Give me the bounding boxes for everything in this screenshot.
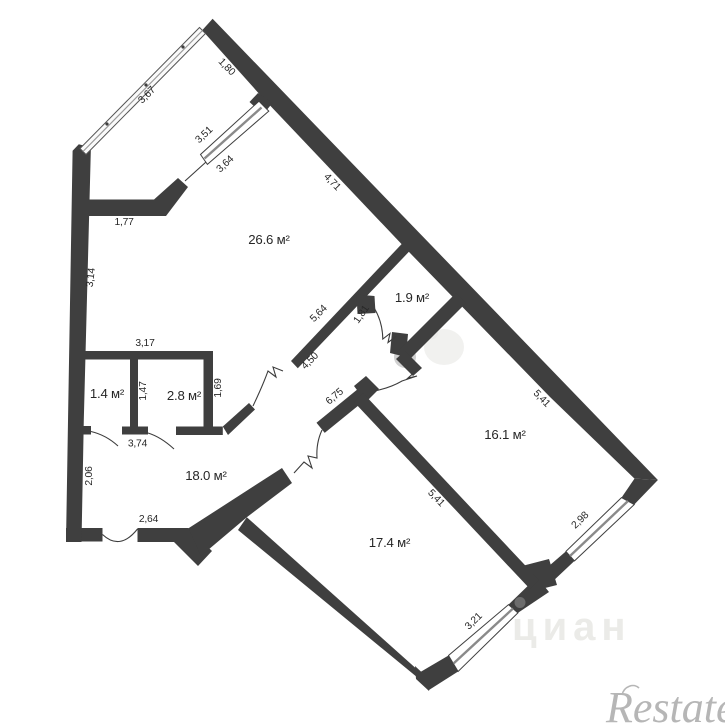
svg-text:1,69: 1,69 — [213, 378, 224, 398]
svg-text:1.4 м²: 1.4 м² — [90, 386, 125, 401]
svg-text:1,47: 1,47 — [138, 381, 149, 401]
svg-text:2,64: 2,64 — [139, 514, 159, 525]
svg-text:26.6 м²: 26.6 м² — [248, 232, 290, 247]
svg-text:2.8 м²: 2.8 м² — [167, 388, 202, 403]
svg-text:18.0 м²: 18.0 м² — [185, 468, 227, 483]
svg-text:1.9 м²: 1.9 м² — [395, 290, 430, 305]
svg-text:3,17: 3,17 — [135, 338, 155, 349]
svg-text:17.4 м²: 17.4 м² — [369, 535, 411, 550]
svg-text:3,74: 3,74 — [128, 439, 148, 450]
svg-text:1,77: 1,77 — [114, 217, 134, 228]
svg-text:Restate: Restate — [605, 683, 725, 725]
svg-text:2,06: 2,06 — [84, 466, 95, 486]
svg-text:циан: циан — [512, 605, 632, 649]
svg-text:16.1 м²: 16.1 м² — [484, 427, 526, 442]
